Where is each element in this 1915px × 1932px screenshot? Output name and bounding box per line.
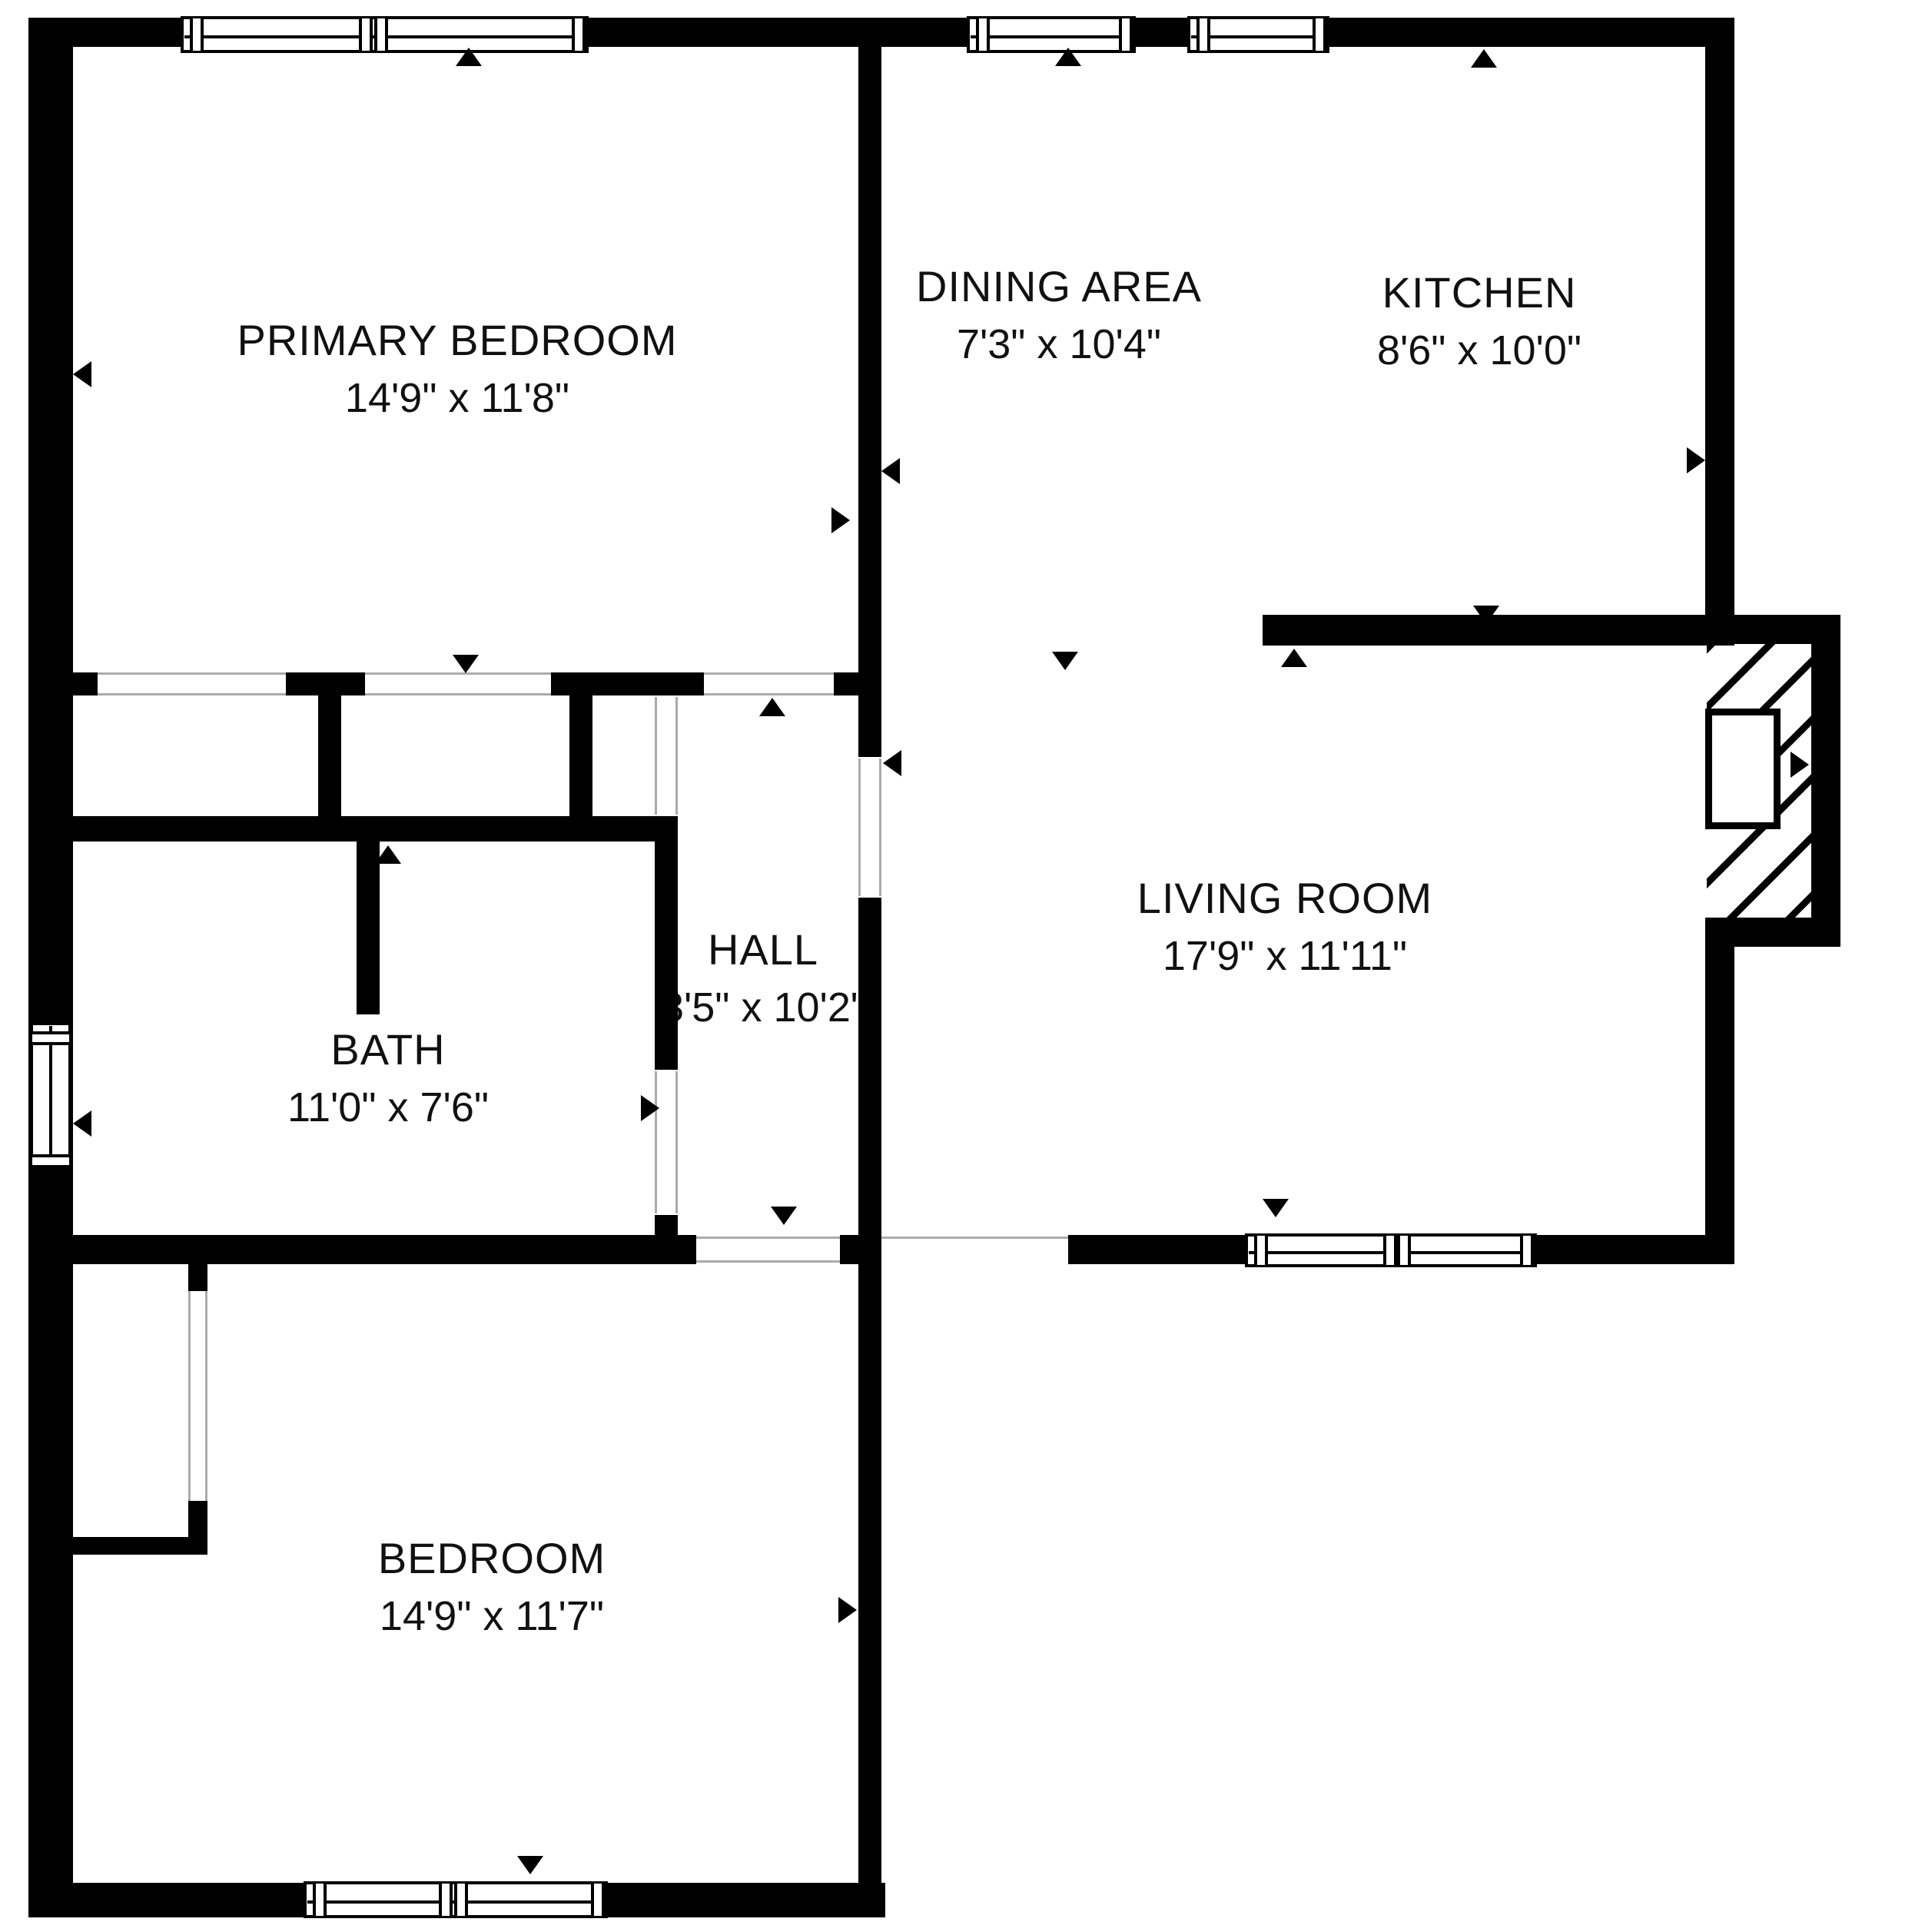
wall-exterior-right-lower [1705,947,1734,1264]
arrow-living-window-icon [1263,1199,1289,1217]
wall-bedroom1-bottom-seg3 [551,672,704,695]
window-living-bottom [1245,1233,1537,1267]
wall-exterior-right-upper [1705,18,1734,644]
wall-closet-stub-2 [569,695,592,816]
room-dims: 14'9" x 11'7" [378,1592,606,1640]
arrow-bedroom2-left-wall-icon [45,1597,63,1623]
wall-hall-left [655,816,678,1070]
arrow-window-dining-icon [1055,48,1081,66]
wall-exterior-left [28,18,73,1917]
opening-bedroom1-hall-door [704,672,834,695]
arrow-closet2-door-icon [453,655,479,673]
opening-living-hall-door [858,759,881,896]
opening-closet1-door [98,672,286,695]
window-kitchen-top [1187,16,1329,53]
arrow-bath-door-icon [641,1095,659,1121]
arrow-divider-bottom-icon [1281,649,1307,667]
window-bedroom2-bottom [304,1881,608,1918]
room-name: BEDROOM [378,1533,606,1583]
wall-spine-lower [858,898,881,1917]
room-name: PRIMARY BEDROOM [237,315,677,365]
arrow-bath-window-icon [73,1110,91,1137]
window-bath-left [30,1022,71,1171]
room-label-hall: HALL 3'5" x 10'2" [661,925,865,1031]
wall-living-bottom-left-seg [1068,1235,1246,1264]
wall-hall-left-stub [655,1215,678,1235]
room-name: KITCHEN [1377,267,1581,317]
floor-plan: PRIMARY BEDROOM 14'9" x 11'8" DINING ARE… [0,0,1915,1932]
room-dims: 17'9" x 11'11" [1137,932,1432,980]
opening-hall-linen-closet [655,697,678,815]
wall-bath-top [73,816,675,842]
arrow-spine-dining-left-icon [831,507,850,533]
room-dims: 11'0" x 7'6" [287,1084,489,1131]
arrow-living-hall-door-icon [883,750,901,776]
arrow-kitchen-right-wall-icon [1687,447,1705,473]
room-dims: 3'5" x 10'2" [661,984,865,1031]
wall-bedroom1-bottom-seg1 [28,672,98,695]
arrow-dining-living-boundary-icon [1052,652,1078,670]
room-name: HALL [661,925,865,974]
room-label-bath: BATH 11'0" x 7'6" [287,1024,489,1131]
wall-bedroom2-bottom-seg2 [608,1883,885,1917]
room-dims: 7'3" x 10'4" [916,320,1202,368]
arrow-divider-top-icon [1473,606,1499,624]
wall-bedroom2-top [28,1235,696,1264]
opening-closet2-door [365,672,551,695]
opening-hall-bedroom2-door [696,1237,840,1263]
wall-spine-mid [858,695,881,757]
room-name: BATH [287,1024,489,1074]
arrow-bedroom2-right-wall-icon [838,1597,857,1623]
wall-bath-partition [357,842,380,1014]
arrow-wall-kitchen-top-icon [1471,49,1497,68]
room-dims: 8'6" x 10'0" [1377,327,1581,374]
wall-bedroom1-bottom-seg4 [834,672,881,695]
arrow-bath-partition-icon [375,845,401,864]
room-label-bedroom: BEDROOM 14'9" x 11'7" [378,1533,606,1640]
room-label-living-room: LIVING ROOM 17'9" x 11'11" [1137,873,1432,980]
opening-hall-bath-door [655,1071,678,1213]
wall-fireplace-bottom [1705,918,1840,947]
wall-closet-stub-1 [318,695,341,816]
room-label-dining-area: DINING AREA 7'3" x 10'4" [916,261,1202,368]
room-label-primary-bedroom: PRIMARY BEDROOM 14'9" x 11'8" [237,315,677,422]
room-name: LIVING ROOM [1137,873,1432,923]
window-primary-bedroom-top [181,16,589,53]
arrow-spine-dining-right-icon [881,458,900,484]
arrow-window-primary-bedroom-icon [456,48,482,66]
wall-closet2-bottom [73,1537,207,1555]
wall-spine-upper [858,18,881,695]
wall-closet2-right-upper [188,1264,207,1291]
room-name: DINING AREA [916,261,1202,311]
wall-bedroom2-bottom-seg1 [28,1883,304,1917]
wall-fireplace-right [1811,615,1840,947]
room-dims: 14'9" x 11'8" [237,374,677,422]
wall-living-bottom-right-seg [1535,1235,1734,1264]
arrow-bedroom1-left-wall-icon [73,361,91,387]
arrow-bedroom2-window-icon [517,1856,543,1874]
room-label-kitchen: KITCHEN 8'6" x 10'0" [1377,267,1581,374]
arrow-fireplace-icon [1791,752,1809,778]
arrow-hall-bedroom2-door-icon [771,1207,797,1225]
opening-front-entry [881,1237,1068,1263]
arrow-bedroom1-hall-door-icon [759,698,785,716]
wall-bedroom1-bottom-seg2 [286,672,365,695]
window-dining-top [967,16,1136,53]
fireplace-firebox [1705,709,1781,829]
opening-closet2-door-bedroom2 [188,1291,207,1501]
